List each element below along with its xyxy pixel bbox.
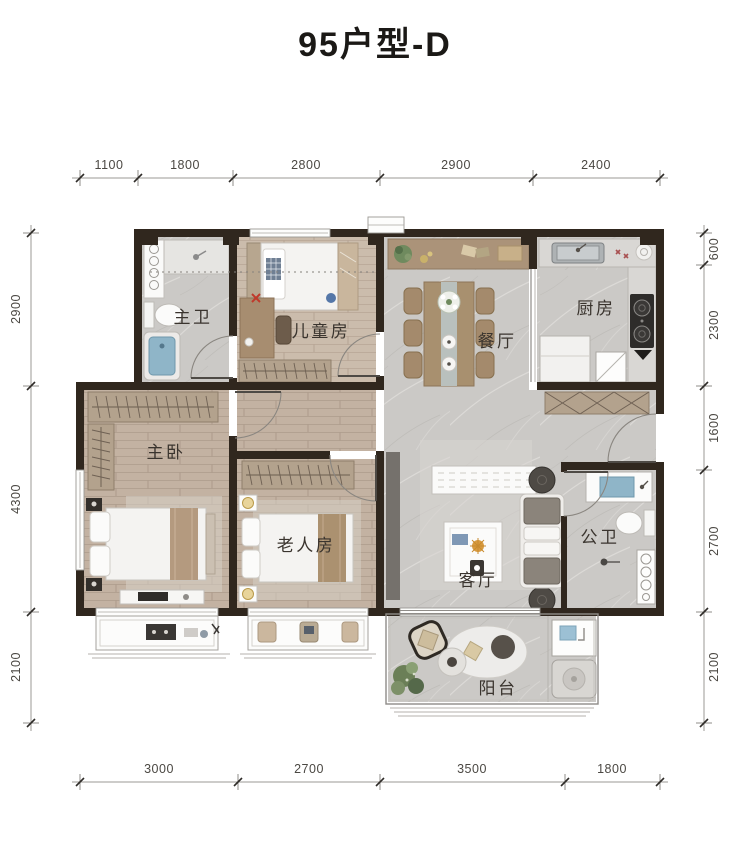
kitchen-sliding-door [531, 269, 535, 382]
room-label-master-bedroom: 主卧 [147, 443, 186, 462]
bay-windows [88, 616, 376, 658]
dim-top-4: 2400 [581, 158, 611, 172]
dim-bottom-1: 2700 [294, 762, 324, 776]
bath-vanity-icon [164, 240, 229, 274]
dim-left-1: 4300 [9, 484, 23, 514]
dim-bottom-3: 1800 [597, 762, 627, 776]
dimension-chain-top: 1100 1800 2800 2900 2400 [72, 158, 668, 186]
room-label-dining-room: 餐厅 [478, 332, 517, 351]
dim-top-1: 1800 [170, 158, 200, 172]
dim-top-2: 2800 [291, 158, 321, 172]
room-label-guest-bath: 公卫 [581, 528, 620, 547]
floor-plan-page: 95户型-D 1100 1800 2800 2900 2400 [0, 0, 751, 863]
dimension-chain-bottom: 3000 2700 3500 1800 [72, 762, 668, 790]
room-label-elder-room: 老人房 [277, 536, 336, 555]
tv-wall [386, 452, 400, 600]
sideboard-icon [388, 239, 529, 269]
guest-toilet-icon [616, 510, 655, 536]
bath-shelf-icon [144, 240, 164, 298]
room-label-balcony: 阳台 [479, 679, 518, 698]
floor-plan-canvas: 95户型-D 1100 1800 2800 2900 2400 [0, 0, 751, 863]
dim-right-3: 2700 [707, 526, 721, 556]
shoe-cabinet-icon [545, 392, 649, 414]
elder-wardrobe-icon [242, 461, 354, 489]
room-label-living-room: 客厅 [459, 571, 498, 590]
kids-wardrobe-icon [239, 360, 331, 382]
dim-right-0: 600 [707, 238, 721, 260]
dimension-chain-left: 2900 4300 2100 [9, 225, 39, 731]
dim-right-2: 1600 [707, 413, 721, 443]
room-label-kids-room: 儿童房 [292, 322, 351, 341]
plan-title: 95户型-D [298, 26, 452, 64]
dim-bottom-2: 3500 [457, 762, 487, 776]
room-label-master-bath: 主卫 [174, 308, 213, 327]
dim-top-3: 2900 [441, 158, 471, 172]
dim-bottom-0: 3000 [144, 762, 174, 776]
bathtub-icon [144, 332, 180, 380]
room-label-kitchen: 厨房 [577, 299, 616, 318]
master-dresser-icon [120, 590, 204, 604]
dim-left-2: 2100 [9, 652, 23, 682]
dim-right-4: 2100 [707, 652, 721, 682]
guest-bath-vanity-icon [586, 472, 652, 502]
stove-icon [630, 294, 654, 348]
dim-right-1: 2300 [707, 310, 721, 340]
tv-console-icon [432, 466, 536, 494]
dimension-chain-right: 600 2300 1600 2700 2100 [696, 225, 721, 731]
dim-top-0: 1100 [95, 158, 124, 172]
dim-left-0: 2900 [9, 294, 23, 324]
